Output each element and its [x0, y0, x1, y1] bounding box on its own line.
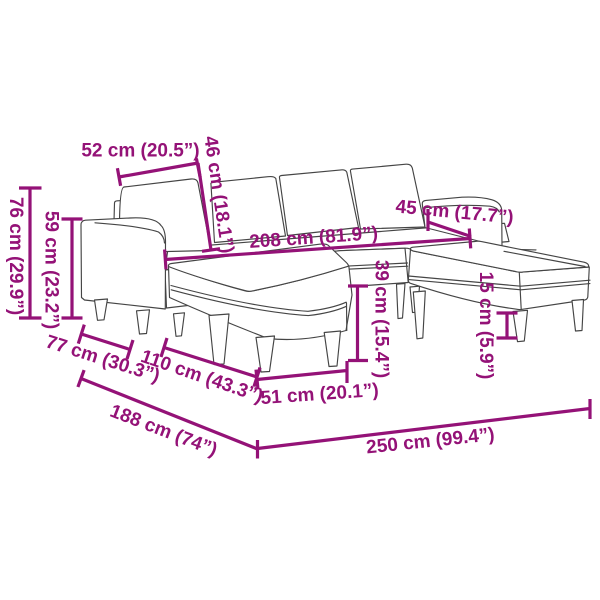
svg-text:39 cm (15.4”): 39 cm (15.4”)	[371, 260, 392, 378]
svg-text:76 cm (29.9”): 76 cm (29.9”)	[5, 197, 26, 315]
svg-text:59 cm (23.2”): 59 cm (23.2”)	[41, 211, 62, 329]
svg-text:15 cm (5.9”): 15 cm (5.9”)	[475, 272, 496, 380]
svg-text:52 cm (20.5”): 52 cm (20.5”)	[81, 141, 199, 162]
svg-text:51 cm (20.1”): 51 cm (20.1”)	[260, 380, 379, 409]
